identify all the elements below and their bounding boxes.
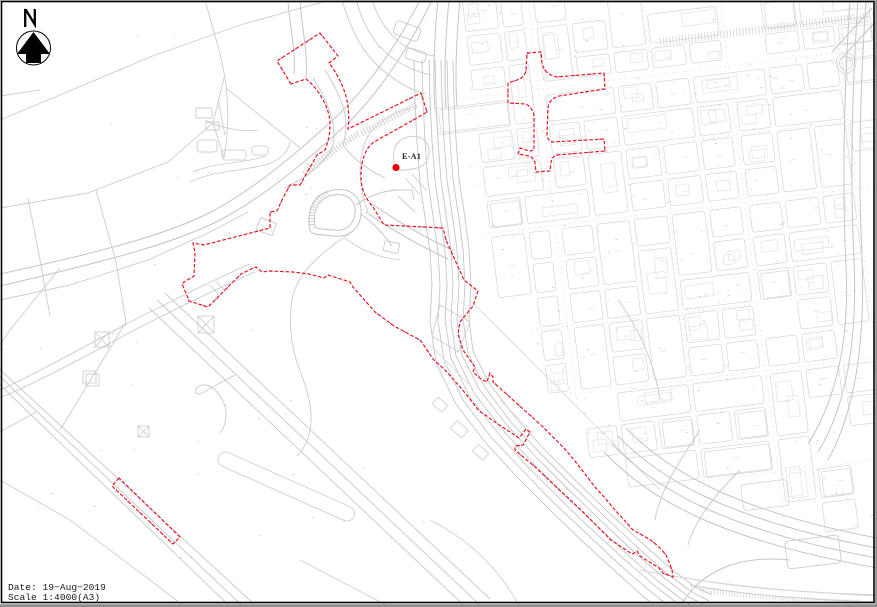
svg-text:E-A1: E-A1 [402,152,421,161]
svg-text:Scale 1:4000(A3): Scale 1:4000(A3) [8,592,100,603]
